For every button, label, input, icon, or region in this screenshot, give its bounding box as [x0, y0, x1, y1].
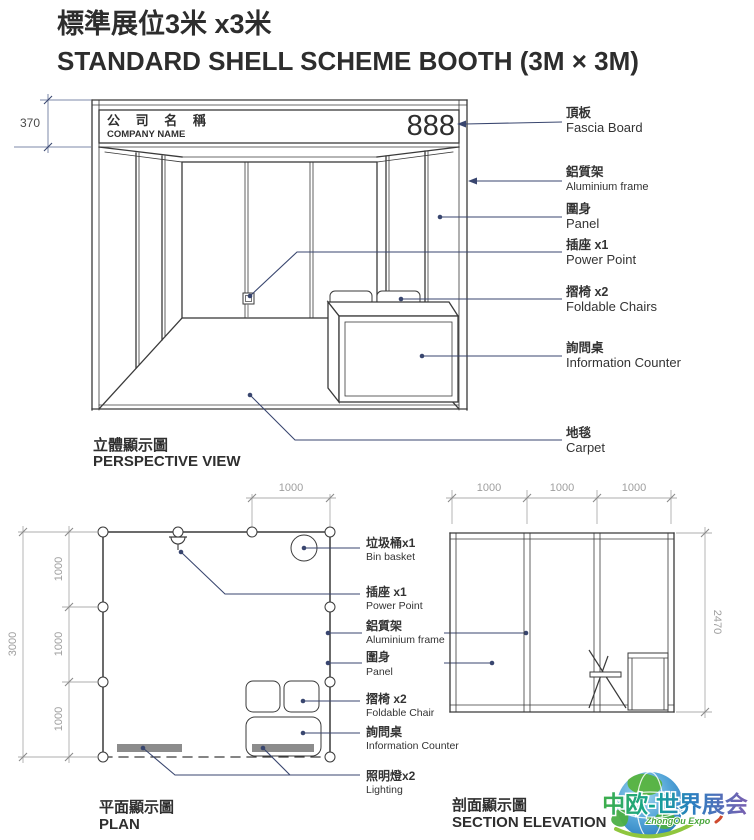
plan-dimensions-top: 1000	[246, 482, 336, 528]
plan-caption: 平面顯示圖 PLAN	[99, 798, 174, 833]
plan-foldable-chair-2	[284, 681, 319, 712]
drawing-canvas: 標準展位3米 x3米 STANDARD SHELL SCHEME BOOTH (…	[0, 0, 754, 840]
plan-label-aluminium-frame-zh: 鋁質架	[365, 618, 402, 633]
plan-label-bin-basket-zh: 垃圾桶x1	[366, 535, 416, 550]
label-carpet-zh: 地毯	[566, 425, 592, 440]
expo-logo: 中欧-世界展会 ZhongOu Expo	[602, 772, 748, 838]
section-dim-bay-2: 1000	[550, 482, 574, 494]
plan-label-information-counter-zh: 詢問桌	[366, 724, 403, 739]
label-aluminium-frame: 鋁質架 Aluminium frame	[565, 164, 649, 193]
label-panel-zh: 圍身	[566, 201, 592, 216]
label-foldable-chairs-en: Foldable Chairs	[566, 299, 658, 314]
perspective-caption-en: PERSPECTIVE VIEW	[93, 453, 241, 470]
label-carpet: 地毯 Carpet	[566, 425, 605, 455]
plan-power-point-symbol	[169, 537, 187, 550]
label-power-point-en: Power Point	[566, 252, 636, 267]
label-aluminium-frame-zh: 鋁質架	[565, 164, 604, 179]
perspective-labels: 頂板 Fascia Board 鋁質架 Aluminium frame 圍身 P…	[565, 105, 682, 455]
page-header: 標準展位3米 x3米 STANDARD SHELL SCHEME BOOTH (…	[57, 8, 639, 76]
plan-label-information-counter-en: Information Counter	[366, 740, 459, 752]
plan-label-panel-zh: 圍身	[366, 649, 390, 664]
plan-caption-zh: 平面顯示圖	[99, 798, 174, 816]
fascia-board: 公 司 名 稱 COMPANY NAME 888	[99, 110, 459, 143]
plan-label-lighting-en: Lighting	[366, 784, 403, 796]
fascia-company-zh: 公 司 名 稱	[107, 113, 212, 128]
section-dimension-height: 2470	[676, 527, 723, 718]
section-dimensions-top: 1000 1000 1000	[446, 482, 677, 524]
perspective-caption: 立體顯示圖 PERSPECTIVE VIEW	[93, 436, 241, 470]
plan-label-panel: 圍身 Panel	[366, 649, 393, 678]
plan-label-foldable-chair: 摺椅 x2 Foldable Chair	[366, 691, 435, 719]
plan-label-bin-basket-en: Bin basket	[366, 551, 415, 563]
section-counter-symbol	[628, 653, 668, 710]
plan-dim-total: 3000	[7, 632, 19, 656]
plan-labels: 垃圾桶x1 Bin basket 插座 x1 Power Point 鋁質架 A…	[365, 535, 459, 796]
plan-foldable-chair-1	[246, 681, 280, 712]
section-foldable-chair-symbol	[589, 650, 626, 708]
plan-label-foldable-chair-zh: 摺椅 x2	[366, 691, 407, 706]
page-title-zh: 標準展位3米 x3米	[57, 8, 272, 39]
label-carpet-en: Carpet	[566, 440, 605, 455]
plan-label-foldable-chair-en: Foldable Chair	[366, 707, 435, 719]
plan-dim-bay-1: 1000	[53, 557, 65, 581]
page-title-en: STANDARD SHELL SCHEME BOOTH (3M × 3M)	[57, 46, 639, 76]
section-dim-bay-3: 1000	[622, 482, 646, 494]
plan-dimensions-left: 1000 1000 1000 3000	[7, 526, 97, 763]
label-panel-en: Panel	[566, 216, 599, 231]
label-fascia-board-en: Fascia Board	[566, 120, 643, 135]
section-caption: 剖面顯示圖 SECTION ELEVATION	[452, 796, 606, 831]
label-fascia-board-zh: 頂板	[566, 105, 592, 120]
plan-lighting-bar-1	[117, 744, 182, 752]
label-information-counter: 詢問桌 Information Counter	[566, 340, 682, 370]
perspective-view: 370	[14, 94, 682, 470]
logo-name-en: ZhongOu Expo	[645, 816, 711, 826]
fascia-company-en: COMPANY NAME	[107, 129, 185, 140]
label-power-point: 插座 x1 Power Point	[566, 237, 636, 267]
information-counter-symbol	[328, 302, 458, 402]
perspective-caption-zh: 立體顯示圖	[93, 436, 168, 454]
label-information-counter-zh: 詢問桌	[566, 340, 604, 355]
label-aluminium-frame-en: Aluminium frame	[566, 181, 649, 193]
section-dim-height: 2470	[711, 610, 723, 634]
plan-leaders	[141, 546, 529, 775]
booth-number: 888	[407, 110, 455, 142]
dim-370-label: 370	[20, 116, 40, 130]
label-panel: 圍身 Panel	[566, 201, 599, 231]
plan-label-bin-basket: 垃圾桶x1 Bin basket	[366, 535, 416, 563]
label-information-counter-en: Information Counter	[566, 355, 682, 370]
plan-label-power-point-en: Power Point	[366, 600, 423, 612]
plan-label-information-counter: 詢問桌 Information Counter	[366, 724, 459, 752]
plan-label-power-point: 插座 x1 Power Point	[366, 584, 423, 612]
plan-dim-bay-3: 1000	[53, 707, 65, 731]
booth-spec-sheet: 標準展位3米 x3米 STANDARD SHELL SCHEME BOOTH (…	[0, 0, 754, 840]
label-foldable-chairs-zh: 摺椅 x2	[566, 284, 608, 299]
section-caption-zh: 剖面顯示圖	[452, 796, 527, 814]
plan-caption-en: PLAN	[99, 816, 140, 833]
plan-furniture	[117, 681, 321, 756]
section-dim-bay-1: 1000	[477, 482, 501, 494]
label-fascia-board: 頂板 Fascia Board	[566, 105, 643, 135]
plan-label-lighting-zh: 照明燈x2	[366, 768, 416, 783]
plan-label-aluminium-frame-en: Aluminium frame	[366, 634, 445, 646]
plan-dim-bay-2: 1000	[53, 632, 65, 656]
plan-label-power-point-zh: 插座 x1	[366, 584, 407, 599]
plan-label-panel-en: Panel	[366, 666, 393, 678]
dim-fascia-height: 370	[14, 94, 91, 153]
section-caption-en: SECTION ELEVATION	[452, 814, 606, 831]
plan-dim-top-bay: 1000	[279, 482, 303, 494]
section-elevation: 1000 1000 1000	[446, 482, 723, 831]
label-foldable-chairs: 摺椅 x2 Foldable Chairs	[566, 284, 658, 314]
label-power-point-zh: 插座 x1	[566, 237, 608, 252]
plan-label-aluminium-frame: 鋁質架 Aluminium frame	[365, 618, 445, 646]
plan-label-lighting: 照明燈x2 Lighting	[366, 768, 416, 796]
logo-name-zh: 中欧-世界展会	[602, 791, 748, 817]
